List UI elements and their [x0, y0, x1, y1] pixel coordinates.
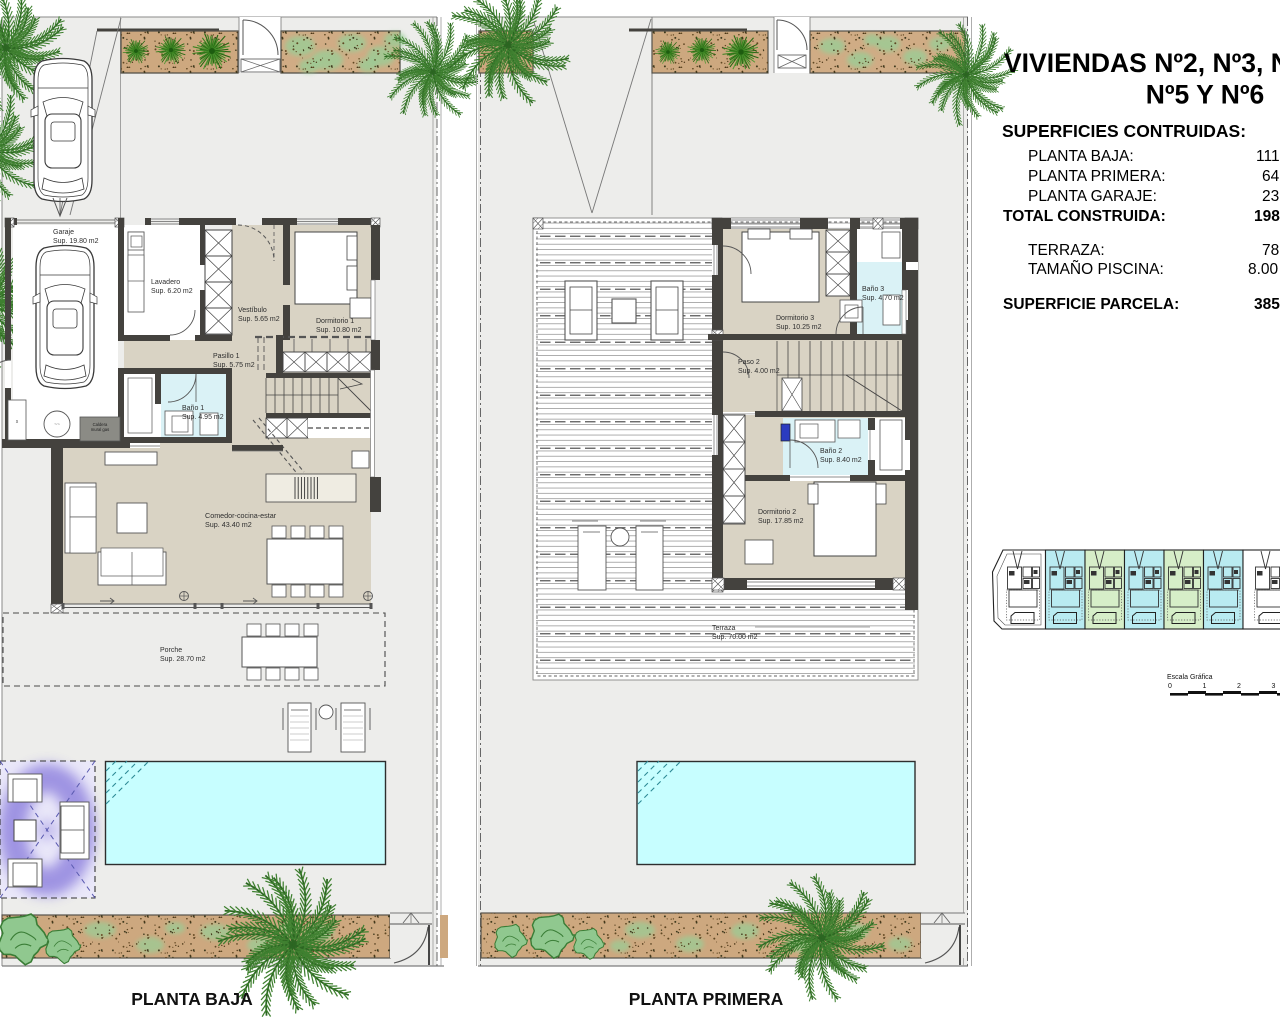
svg-text:Sup. 6.20 m2: Sup. 6.20 m2	[151, 288, 193, 295]
svg-text:Baño 1: Baño 1	[182, 405, 204, 412]
svg-text:Sup. 17.85 m2: Sup. 17.85 m2	[758, 518, 804, 525]
svg-text:Sup. 4.95 m2: Sup. 4.95 m2	[182, 414, 224, 421]
svg-text:SUPERFICIE PARCELA:: SUPERFICIE PARCELA:	[1003, 296, 1179, 313]
svg-text:Comedor-cocina-estar: Comedor-cocina-estar	[205, 511, 277, 520]
svg-text:PLANTA GARAJE:: PLANTA GARAJE:	[1028, 188, 1157, 205]
svg-text:385.00 m2: 385.00 m2	[1254, 296, 1280, 313]
svg-text:111.00 m2: 111.00 m2	[1256, 148, 1280, 165]
svg-text:PLANTA PRIMERA: PLANTA PRIMERA	[629, 989, 784, 1009]
svg-text:Sup. 28.70 m2: Sup. 28.70 m2	[160, 656, 206, 663]
svg-text:Paso 2: Paso 2	[738, 359, 760, 366]
svg-text:0: 0	[1168, 683, 1172, 690]
svg-text:Dormitorio 3: Dormitorio 3	[776, 315, 814, 322]
svg-text:Baño 3: Baño 3	[862, 286, 884, 293]
svg-text:Sup. 43.40 m2: Sup. 43.40 m2	[205, 520, 252, 529]
svg-text:Sup. 4.00 m2: Sup. 4.00 m2	[738, 368, 780, 375]
svg-text:PLANTA BAJA: PLANTA BAJA	[131, 989, 253, 1009]
svg-text:Escala Gráfica: Escala Gráfica	[1167, 674, 1213, 681]
svg-text:198.00 m2: 198.00 m2	[1254, 208, 1280, 225]
svg-text:PLANTA PRIMERA:: PLANTA PRIMERA:	[1028, 168, 1166, 185]
svg-text:1: 1	[1203, 683, 1207, 690]
svg-text:Dormitorio 1: Dormitorio 1	[316, 318, 354, 325]
svg-text:Dormitorio 2: Dormitorio 2	[758, 509, 796, 516]
svg-text:Pasillo 1: Pasillo 1	[213, 353, 240, 360]
svg-text:VIVIENDAS Nº2, Nº3, Nº4,: VIVIENDAS Nº2, Nº3, Nº4,	[1004, 48, 1280, 78]
svg-text:Garaje: Garaje	[53, 229, 74, 236]
svg-text:Vestíbulo: Vestíbulo	[238, 307, 267, 314]
svg-text:PLANTA BAJA:: PLANTA BAJA:	[1028, 148, 1134, 165]
svg-text:Sup. 4.70 m2: Sup. 4.70 m2	[862, 295, 904, 302]
svg-text:Sup. 10.80 m2: Sup. 10.80 m2	[316, 327, 362, 334]
svg-text:Sup. 8.40 m2: Sup. 8.40 m2	[820, 457, 862, 464]
svg-text:8.00 x 3: 8.00 x 3	[1248, 261, 1280, 278]
svg-text:Porche: Porche	[160, 647, 182, 654]
svg-text:TAMAÑO PISCINA:: TAMAÑO PISCINA:	[1028, 261, 1164, 278]
svg-text:Nº5 Y Nº6: Nº5 Y Nº6	[1146, 80, 1265, 110]
svg-text:Sup. 5.65 m2: Sup. 5.65 m2	[238, 316, 280, 323]
svg-text:Sup. 5.75 m2: Sup. 5.75 m2	[213, 362, 255, 369]
svg-text:mural gas: mural gas	[91, 427, 109, 432]
svg-text:Sup. 70.00 m2: Sup. 70.00 m2	[712, 634, 758, 641]
svg-text:Lavadero: Lavadero	[151, 279, 180, 286]
svg-text:Terraza: Terraza	[712, 625, 735, 632]
svg-text:~~: ~~	[54, 422, 60, 428]
svg-text:78.00 m2: 78.00 m2	[1262, 242, 1280, 259]
svg-text:Baño 2: Baño 2	[820, 448, 842, 455]
svg-text:TERRAZA:: TERRAZA:	[1028, 242, 1105, 259]
svg-text:Sup. 19.80 m2: Sup. 19.80 m2	[53, 238, 99, 245]
svg-text:TOTAL CONSTRUIDA:: TOTAL CONSTRUIDA:	[1003, 208, 1166, 225]
svg-text:SUPERFICIES CONTRUIDAS:: SUPERFICIES CONTRUIDAS:	[1002, 121, 1246, 141]
svg-text:23.00 m2: 23.00 m2	[1262, 188, 1280, 205]
svg-text:3: 3	[1272, 683, 1276, 690]
svg-text:Sup. 10.25 m2: Sup. 10.25 m2	[776, 324, 822, 331]
svg-text:64.00 m2: 64.00 m2	[1262, 168, 1280, 185]
svg-text:2: 2	[1237, 683, 1241, 690]
